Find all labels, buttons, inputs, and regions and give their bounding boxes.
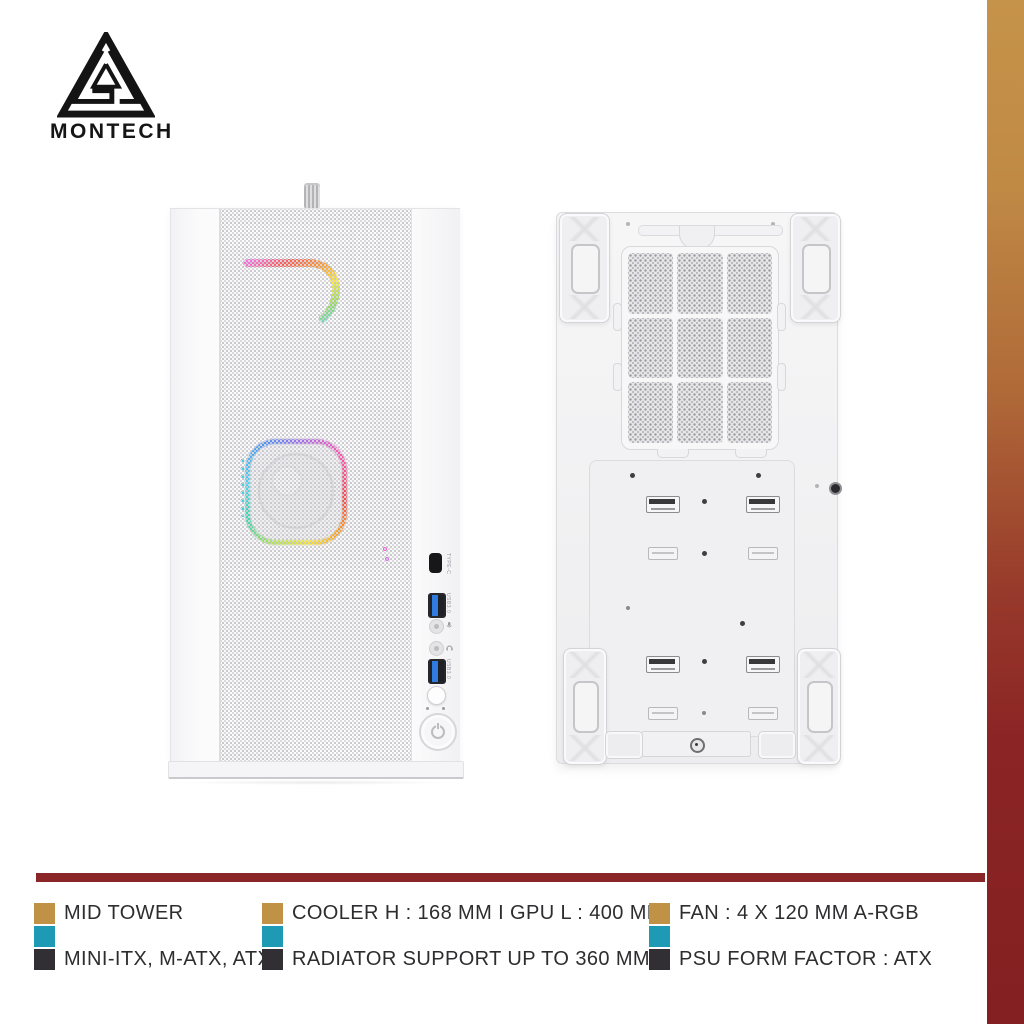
montech-logo: MONTECH: [50, 32, 162, 144]
filter-clip: [777, 363, 786, 391]
case-foot: [790, 213, 841, 323]
filter-mesh-cell: [677, 382, 722, 443]
foot-rubber-pad: [807, 681, 833, 733]
filter-tab: [735, 449, 767, 458]
side-panel-edge: [171, 209, 221, 762]
foot-rubber-pad: [802, 244, 831, 293]
filter-mesh-cell: [628, 253, 673, 314]
accent-squares: [34, 903, 55, 970]
filter-mesh-cell: [727, 382, 772, 443]
usb-type-c-port: [429, 553, 442, 573]
mount-slot: [746, 496, 780, 513]
filter-mesh-cell: [628, 318, 673, 379]
spec-item-fan-psu: FAN : 4 X 120 MM A-RGB PSU FORM FACTOR :…: [649, 903, 932, 970]
accent-squares: [262, 903, 283, 970]
charcoal-square: [262, 949, 283, 970]
gradient-side-bar: [987, 0, 1024, 1024]
divider-rule: [36, 873, 985, 882]
filter-mesh-cell: [677, 253, 722, 314]
led-control-button: [427, 686, 446, 705]
filter-mesh-cell: [677, 318, 722, 379]
foot-bracket: [605, 731, 643, 759]
case-front-view: TYPE-C USB3.0 USB3.0: [168, 183, 462, 789]
screw-hole: [626, 606, 630, 610]
case-foot: [797, 648, 841, 765]
mount-slot: [746, 656, 780, 673]
teal-square: [262, 926, 283, 947]
filter-mesh-cell: [727, 318, 772, 379]
mount-slot: [646, 656, 680, 673]
mount-slot: [748, 547, 778, 560]
foot-rubber-pad: [571, 244, 600, 293]
front-io-strip: TYPE-C USB3.0 USB3.0: [411, 209, 460, 762]
usb3-label: USB3.0: [445, 593, 451, 613]
montech-wordmark: MONTECH: [50, 120, 162, 144]
dust-filter: [621, 246, 779, 450]
gold-square: [34, 903, 55, 924]
foot-rubber-pad: [573, 681, 599, 733]
mic-icon: [446, 622, 452, 630]
mount-slot: [648, 707, 678, 720]
teal-square: [34, 926, 55, 947]
screw-hole: [630, 473, 635, 478]
screw-hole: [702, 499, 707, 504]
spec-item-clearance: COOLER H : 168 MM I GPU L : 400 MM RADIA…: [262, 903, 664, 970]
product-spec-sheet: MONTECH: [0, 0, 1024, 1024]
teal-square: [649, 926, 670, 947]
case-base: [168, 761, 464, 779]
headphone-icon: [446, 644, 453, 651]
screw-hole: [702, 711, 706, 715]
screw-hole: [815, 484, 819, 488]
spec-text: PSU FORM FACTOR : ATX: [679, 949, 932, 970]
case-bottom-view: [556, 210, 838, 766]
case-bottom-panel: [556, 212, 838, 764]
usb3-port: [428, 593, 446, 618]
type-c-label: TYPE-C: [445, 553, 451, 574]
screw-hole: [756, 473, 761, 478]
filter-clip: [613, 303, 622, 331]
mount-slot: [648, 547, 678, 560]
case-foot: [559, 213, 610, 323]
case-shadow: [174, 780, 456, 785]
mic-jack: [429, 619, 444, 634]
psu-mount-panel: [589, 460, 795, 737]
screw-hole: [702, 551, 707, 556]
spec-text: MINI-ITX, M-ATX, ATX: [64, 949, 271, 970]
spec-item-form-factor: MID TOWER MINI-ITX, M-ATX, ATX: [34, 903, 271, 970]
screw-hole: [702, 659, 707, 664]
filter-mesh-cell: [727, 253, 772, 314]
screw-hole: [740, 621, 745, 626]
case-front-body: TYPE-C USB3.0 USB3.0: [170, 208, 460, 762]
spec-text: COOLER H : 168 MM I GPU L : 400 MM: [292, 903, 664, 924]
usb3-port: [428, 659, 446, 684]
case-foot: [563, 648, 607, 765]
filter-clip: [777, 303, 786, 331]
gold-square: [649, 903, 670, 924]
power-icon: [431, 725, 445, 739]
spec-text: FAN : 4 X 120 MM A-RGB: [679, 903, 932, 924]
filter-clip: [613, 363, 622, 391]
mesh-front-panel: [221, 209, 411, 762]
mesh-dot-texture: [221, 209, 411, 762]
foot-bracket: [758, 731, 796, 759]
power-button: [419, 713, 457, 751]
usb3-label: USB3.0: [445, 659, 451, 679]
power-led-indicator: [426, 707, 429, 710]
gold-square: [262, 903, 283, 924]
montech-triangle-icon: [57, 32, 155, 118]
charcoal-square: [649, 949, 670, 970]
hdd-led-indicator: [442, 707, 445, 710]
mount-slot: [646, 496, 680, 513]
bottom-brace-bar: [641, 731, 751, 757]
charcoal-square: [34, 949, 55, 970]
filter-mesh-cell: [628, 382, 673, 443]
screw: [690, 738, 705, 753]
accent-squares: [649, 903, 670, 970]
screw-hole: [626, 222, 630, 226]
mount-slot: [748, 707, 778, 720]
filter-tab: [657, 449, 689, 458]
screw: [829, 482, 842, 495]
thumbscrew: [304, 185, 320, 209]
spec-text: RADIATOR SUPPORT UP TO 360 MM: [292, 949, 664, 970]
spec-text: MID TOWER: [64, 903, 271, 924]
headphone-jack: [429, 641, 444, 656]
